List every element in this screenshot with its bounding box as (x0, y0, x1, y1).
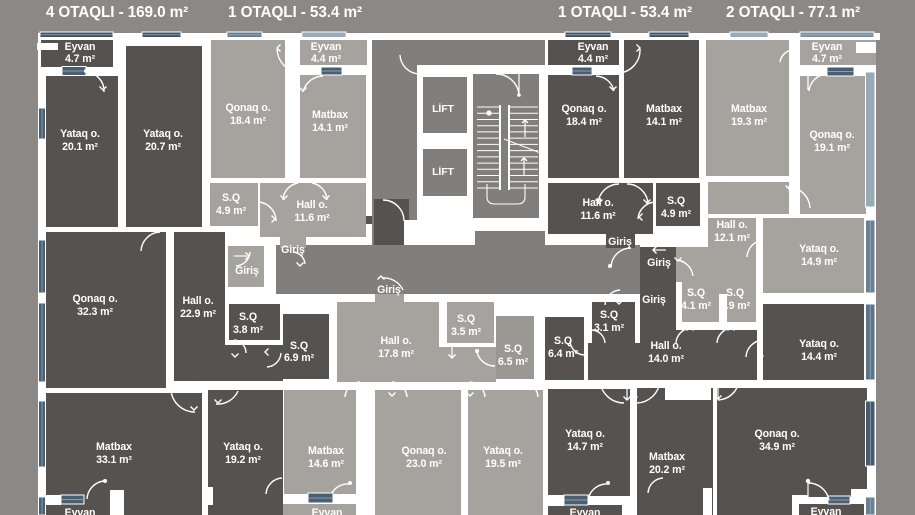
svg-text:Yataq o.: Yataq o. (60, 128, 100, 140)
svg-text:14.6 m²: 14.6 m² (308, 458, 344, 470)
svg-text:32.3 m²: 32.3 m² (77, 306, 113, 318)
svg-text:Matbax: Matbax (646, 103, 682, 115)
svg-text:19.3 m²: 19.3 m² (731, 116, 767, 128)
svg-text:Yataq o.: Yataq o. (799, 338, 839, 350)
svg-text:S.Q: S.Q (222, 192, 240, 204)
svg-text:19.2 m²: 19.2 m² (225, 454, 261, 466)
svg-text:14.0 m²: 14.0 m² (648, 353, 684, 365)
svg-text:Hall o.: Hall o. (380, 335, 411, 347)
svg-text:S.Q: S.Q (687, 287, 705, 299)
svg-text:Giriş: Giriş (281, 244, 305, 256)
svg-text:S.Q: S.Q (600, 309, 618, 321)
svg-text:Yataq o.: Yataq o. (565, 428, 605, 440)
svg-text:2 OTAQLI - 77.1 m²: 2 OTAQLI - 77.1 m² (726, 4, 860, 21)
svg-text:S.Q: S.Q (554, 335, 572, 347)
svg-text:22.9 m²: 22.9 m² (180, 308, 216, 320)
svg-text:6.5 m²: 6.5 m² (498, 356, 529, 368)
svg-text:Hall o.: Hall o. (716, 219, 747, 231)
svg-text:1 OTAQLI - 53.4 m²: 1 OTAQLI - 53.4 m² (228, 4, 362, 21)
svg-text:Qonaq o.: Qonaq o. (225, 102, 270, 114)
svg-text:18.4 m²: 18.4 m² (566, 116, 602, 128)
svg-text:Eyvan: Eyvan (570, 507, 601, 515)
svg-text:11.6 m²: 11.6 m² (580, 210, 616, 222)
svg-text:19.1 m²: 19.1 m² (814, 142, 850, 154)
svg-text:20.1 m²: 20.1 m² (62, 141, 98, 153)
svg-text:S.Q: S.Q (239, 311, 257, 323)
svg-text:S.Q: S.Q (504, 343, 522, 355)
svg-text:Matbax: Matbax (308, 445, 344, 457)
svg-text:3.5 m²: 3.5 m² (451, 326, 482, 338)
svg-text:6.4 m²: 6.4 m² (548, 348, 579, 360)
svg-text:6.9 m²: 6.9 m² (284, 352, 315, 364)
svg-text:Giriş: Giriş (608, 236, 632, 248)
svg-text:Eyvan: Eyvan (812, 41, 843, 53)
svg-text:Hall o.: Hall o. (650, 340, 681, 352)
svg-text:17.8 m²: 17.8 m² (378, 348, 414, 360)
svg-text:18.4 m²: 18.4 m² (230, 115, 266, 127)
svg-text:Eyvan: Eyvan (811, 506, 842, 515)
svg-text:2.9 m²: 2.9 m² (720, 300, 751, 312)
svg-text:Giriş: Giriş (647, 257, 671, 269)
svg-text:Yataq o.: Yataq o. (483, 445, 523, 457)
svg-text:Qonaq o.: Qonaq o. (754, 428, 799, 440)
svg-text:Eyvan: Eyvan (65, 507, 96, 515)
svg-text:Giriş: Giriş (642, 294, 666, 306)
svg-text:4.4 m²: 4.4 m² (311, 53, 342, 65)
svg-text:Eyvan: Eyvan (578, 41, 609, 53)
svg-text:S.Q: S.Q (726, 287, 744, 299)
svg-text:20.2 m²: 20.2 m² (649, 464, 685, 476)
svg-text:34.9 m²: 34.9 m² (759, 441, 795, 453)
svg-text:3.8 m²: 3.8 m² (233, 324, 264, 336)
svg-text:Eyvan: Eyvan (65, 41, 96, 53)
svg-text:Matbax: Matbax (731, 103, 767, 115)
svg-text:LİFT: LİFT (432, 165, 454, 178)
svg-text:14.1 m²: 14.1 m² (646, 116, 682, 128)
svg-text:4.1 m²: 4.1 m² (681, 300, 712, 312)
svg-text:Qonaq o.: Qonaq o. (72, 293, 117, 305)
svg-text:Matbax: Matbax (96, 441, 132, 453)
svg-text:Hall o.: Hall o. (582, 197, 613, 209)
svg-text:19.5 m²: 19.5 m² (485, 458, 521, 470)
svg-text:4.7 m²: 4.7 m² (65, 53, 96, 65)
svg-text:11.6 m²: 11.6 m² (294, 212, 330, 224)
svg-text:Yataq o.: Yataq o. (143, 128, 183, 140)
svg-text:Qonaq o.: Qonaq o. (809, 129, 854, 141)
svg-text:Qonaq o.: Qonaq o. (401, 445, 446, 457)
svg-text:20.7 m²: 20.7 m² (145, 141, 181, 153)
svg-text:14.1 m²: 14.1 m² (312, 122, 348, 134)
svg-text:1 OTAQLI - 53.4 m²: 1 OTAQLI - 53.4 m² (558, 4, 692, 21)
svg-text:12.1 m²: 12.1 m² (714, 232, 750, 244)
svg-text:3.1 m²: 3.1 m² (594, 322, 625, 334)
svg-text:Yataq o.: Yataq o. (223, 441, 263, 453)
svg-text:4 OTAQLI - 169.0 m²: 4 OTAQLI - 169.0 m² (46, 4, 188, 21)
svg-text:Matbax: Matbax (649, 451, 685, 463)
svg-text:S.Q: S.Q (290, 340, 308, 352)
svg-text:14.7 m²: 14.7 m² (567, 441, 603, 453)
svg-text:Eyvan: Eyvan (311, 41, 342, 53)
svg-text:S.Q: S.Q (457, 313, 475, 325)
svg-text:4.9 m²: 4.9 m² (661, 208, 692, 220)
svg-text:4.9 m²: 4.9 m² (216, 205, 247, 217)
svg-text:Qonaq o.: Qonaq o. (561, 103, 606, 115)
svg-text:Hall o.: Hall o. (296, 199, 327, 211)
svg-text:4.7 m²: 4.7 m² (812, 53, 843, 65)
svg-text:Hall o.: Hall o. (182, 295, 213, 307)
svg-text:14.9 m²: 14.9 m² (801, 256, 837, 268)
svg-text:23.0 m²: 23.0 m² (406, 458, 442, 470)
svg-text:LİFT: LİFT (432, 102, 454, 115)
svg-text:Giriş: Giriş (235, 265, 259, 277)
svg-text:S.Q: S.Q (667, 195, 685, 207)
svg-text:Yataq o.: Yataq o. (799, 243, 839, 255)
svg-text:4.4 m²: 4.4 m² (578, 53, 609, 65)
svg-text:14.4 m²: 14.4 m² (801, 351, 837, 363)
svg-text:Eyvan: Eyvan (312, 507, 343, 515)
svg-text:Giriş: Giriş (377, 284, 401, 296)
svg-text:Matbax: Matbax (312, 109, 348, 121)
svg-text:33.1 m²: 33.1 m² (96, 454, 132, 466)
